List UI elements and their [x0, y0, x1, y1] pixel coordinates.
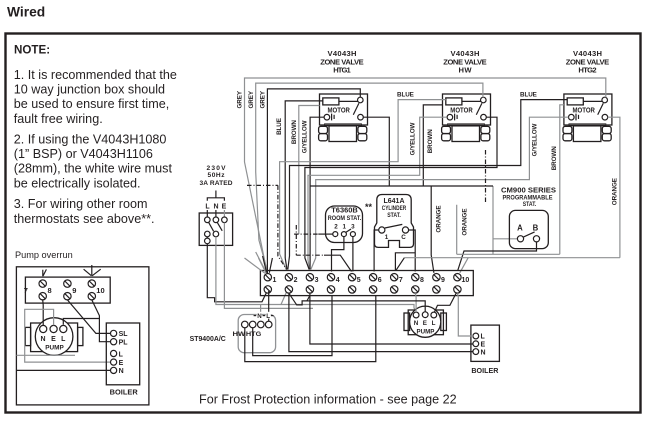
svg-text:be used to ensure first time,: be used to ensure first time, [14, 97, 169, 111]
svg-text:CM900 SERIES: CM900 SERIES [501, 186, 556, 195]
svg-text:ORANGE: ORANGE [435, 206, 442, 233]
svg-text:N: N [481, 349, 486, 356]
svg-text:For Frost Protection informati: For Frost Protection information - see p… [199, 393, 457, 407]
svg-text:NOTE:: NOTE: [14, 44, 50, 57]
svg-text:L: L [266, 313, 270, 320]
svg-text:N: N [257, 313, 262, 320]
svg-text:2. If using the V4043H1080: 2. If using the V4043H1080 [14, 132, 167, 146]
svg-text:be electrically isolated.: be electrically isolated. [14, 176, 141, 190]
svg-text:PUMP: PUMP [45, 345, 64, 352]
svg-text:HTG1: HTG1 [333, 66, 351, 75]
svg-text:10: 10 [462, 277, 470, 284]
svg-text:G/YELLOW: G/YELLOW [409, 122, 416, 155]
svg-text:9: 9 [441, 277, 445, 284]
svg-text:GREY: GREY [248, 90, 255, 108]
svg-text:MOTOR: MOTOR [450, 106, 473, 115]
svg-text:E: E [51, 336, 56, 343]
svg-text:SL: SL [119, 331, 129, 338]
svg-text:T6360B: T6360B [331, 208, 358, 215]
svg-text:E: E [423, 320, 427, 327]
svg-text:N: N [213, 204, 218, 211]
svg-text:L: L [119, 351, 124, 358]
svg-text:G/YELLOW: G/YELLOW [532, 123, 539, 156]
svg-text:2: 2 [294, 277, 298, 284]
svg-text:1. It is recommended that the: 1. It is recommended that the [14, 68, 177, 82]
svg-text:3. For wiring other room: 3. For wiring other room [14, 197, 148, 211]
svg-text:L641A: L641A [384, 198, 405, 205]
svg-text:(28mm), the white wire must: (28mm), the white wire must [14, 162, 173, 176]
svg-text:N: N [40, 336, 45, 343]
svg-text:(1” BSP) or V4043H1106: (1” BSP) or V4043H1106 [14, 147, 153, 161]
svg-text:HTG2: HTG2 [578, 66, 596, 75]
svg-text:STAT.: STAT. [387, 212, 401, 219]
svg-text:1: 1 [273, 277, 277, 284]
svg-text:GREY: GREY [260, 90, 267, 108]
svg-text:9: 9 [72, 286, 76, 295]
svg-text:BROWN: BROWN [291, 120, 298, 145]
svg-text:**: ** [365, 202, 373, 212]
svg-text:230V: 230V [207, 165, 227, 172]
svg-text:N: N [414, 320, 419, 327]
svg-text:8: 8 [48, 286, 52, 295]
svg-text:BLUE: BLUE [397, 92, 414, 99]
svg-text:HW: HW [458, 66, 472, 75]
svg-text:BLUE: BLUE [520, 92, 537, 99]
svg-text:Pump overrun: Pump overrun [15, 250, 73, 260]
svg-text:4: 4 [336, 277, 340, 284]
svg-text:E: E [222, 204, 227, 211]
svg-text:G/YELLOW: G/YELLOW [302, 120, 309, 153]
svg-text:6: 6 [378, 277, 382, 284]
svg-text:ORANGE: ORANGE [611, 178, 618, 205]
svg-text:B: B [533, 223, 539, 232]
svg-text:8: 8 [420, 277, 424, 284]
svg-text:BOILER: BOILER [110, 388, 139, 397]
svg-text:C: C [401, 234, 406, 241]
svg-text:MOTOR: MOTOR [573, 106, 596, 115]
svg-text:3A RATED: 3A RATED [200, 180, 233, 187]
svg-text:7: 7 [399, 277, 403, 284]
svg-text:HTG: HTG [246, 331, 261, 338]
svg-text:5: 5 [357, 277, 361, 284]
svg-text:fault free wiring.: fault free wiring. [14, 112, 103, 126]
svg-text:ROOM STAT.: ROOM STAT. [328, 215, 362, 222]
svg-text:Wired: Wired [7, 5, 45, 20]
svg-text:A: A [517, 223, 523, 232]
svg-text:E: E [119, 360, 124, 367]
svg-text:50Hz: 50Hz [208, 172, 226, 179]
svg-text:PL: PL [119, 340, 129, 347]
svg-text:STAT.: STAT. [523, 201, 537, 208]
svg-text:MOTOR: MOTOR [328, 106, 351, 115]
svg-text:3: 3 [315, 277, 319, 284]
svg-text:1: 1 [385, 234, 389, 241]
svg-text:PUMP: PUMP [417, 329, 435, 336]
svg-text:HW: HW [233, 331, 247, 338]
svg-text:1: 1 [343, 224, 347, 231]
svg-text:10: 10 [96, 286, 104, 295]
svg-text:GREY: GREY [237, 90, 244, 108]
svg-text:ST9400A/C: ST9400A/C [190, 334, 226, 343]
svg-text:N: N [119, 368, 124, 375]
svg-text:2: 2 [334, 224, 338, 231]
svg-text:L: L [61, 336, 66, 343]
svg-text:thermostats see above**.: thermostats see above**. [14, 212, 155, 226]
svg-text:7: 7 [24, 286, 28, 295]
svg-text:E: E [481, 342, 486, 349]
svg-text:BLUE: BLUE [276, 118, 283, 135]
svg-text:10 way junction box should: 10 way junction box should [14, 83, 165, 97]
svg-text:3: 3 [351, 224, 355, 231]
svg-text:L: L [481, 334, 486, 341]
svg-text:BOILER: BOILER [471, 366, 499, 375]
svg-text:L: L [205, 204, 210, 211]
svg-text:BROWN: BROWN [427, 129, 434, 154]
svg-text:ORANGE: ORANGE [462, 209, 469, 236]
svg-text:BROWN: BROWN [551, 146, 558, 171]
svg-text:L: L [432, 320, 436, 327]
